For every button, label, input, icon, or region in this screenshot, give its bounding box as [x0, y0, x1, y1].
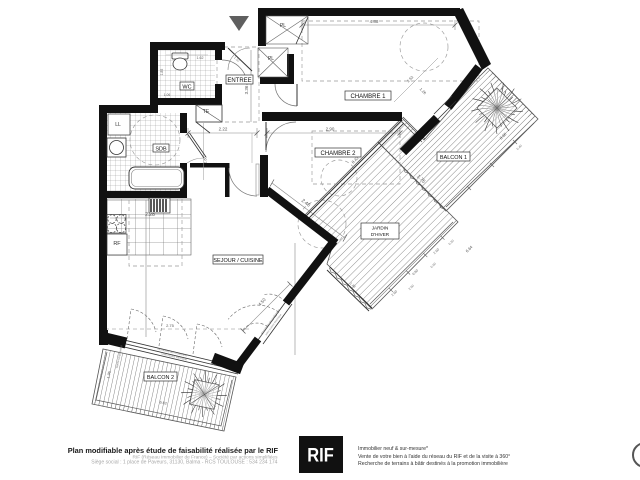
svg-text:WC: WC [182, 85, 191, 91]
svg-text:BALCON 2: BALCON 2 [147, 375, 174, 381]
svg-text:CHAMBRE 1: CHAMBRE 1 [350, 94, 386, 100]
svg-text:4.88: 4.88 [370, 19, 379, 24]
svg-text:1.06: 1.06 [164, 93, 171, 97]
svg-text:Plan modifiable après étude de: Plan modifiable après étude de faisabili… [68, 446, 279, 455]
svg-text:Siège social : 1 place de Pave: Siège social : 1 place de Paveurs, 31130… [91, 460, 277, 466]
svg-text:LL: LL [115, 122, 121, 128]
svg-text:CHAMBRE 2: CHAMBRE 2 [320, 151, 356, 157]
svg-text:Immobilier neuf & sur-mesure*: Immobilier neuf & sur-mesure* [358, 446, 428, 452]
svg-text:RIF: RIF [307, 446, 334, 467]
svg-text:D'HIVER: D'HIVER [371, 232, 390, 237]
svg-text:2.75: 2.75 [166, 323, 175, 328]
svg-text:SEJOUR / CUISINE: SEJOUR / CUISINE [213, 258, 263, 264]
svg-text:ENTREE: ENTREE [227, 78, 251, 84]
svg-text:1.85: 1.85 [160, 69, 164, 76]
svg-text:PL: PL [268, 56, 274, 62]
svg-text:PL: PL [280, 23, 286, 29]
svg-text:2.22: 2.22 [219, 127, 228, 132]
svg-text:Vente de votre bien à l'aide d: Vente de votre bien à l'aide du réseau d… [358, 454, 510, 460]
svg-text:3.36: 3.36 [244, 85, 249, 94]
svg-text:TE: TE [203, 109, 210, 115]
svg-text:BALCON 1: BALCON 1 [440, 155, 467, 161]
svg-text:JARDIN: JARDIN [372, 226, 389, 231]
svg-text:1.62: 1.62 [197, 56, 204, 60]
svg-text:SDB: SDB [155, 147, 167, 153]
svg-text:RF: RF [113, 241, 121, 247]
svg-text:Recherche de terrains à bâtir: Recherche de terrains à bâtir destinés à… [358, 461, 508, 467]
svg-text:2.90: 2.90 [326, 127, 335, 132]
